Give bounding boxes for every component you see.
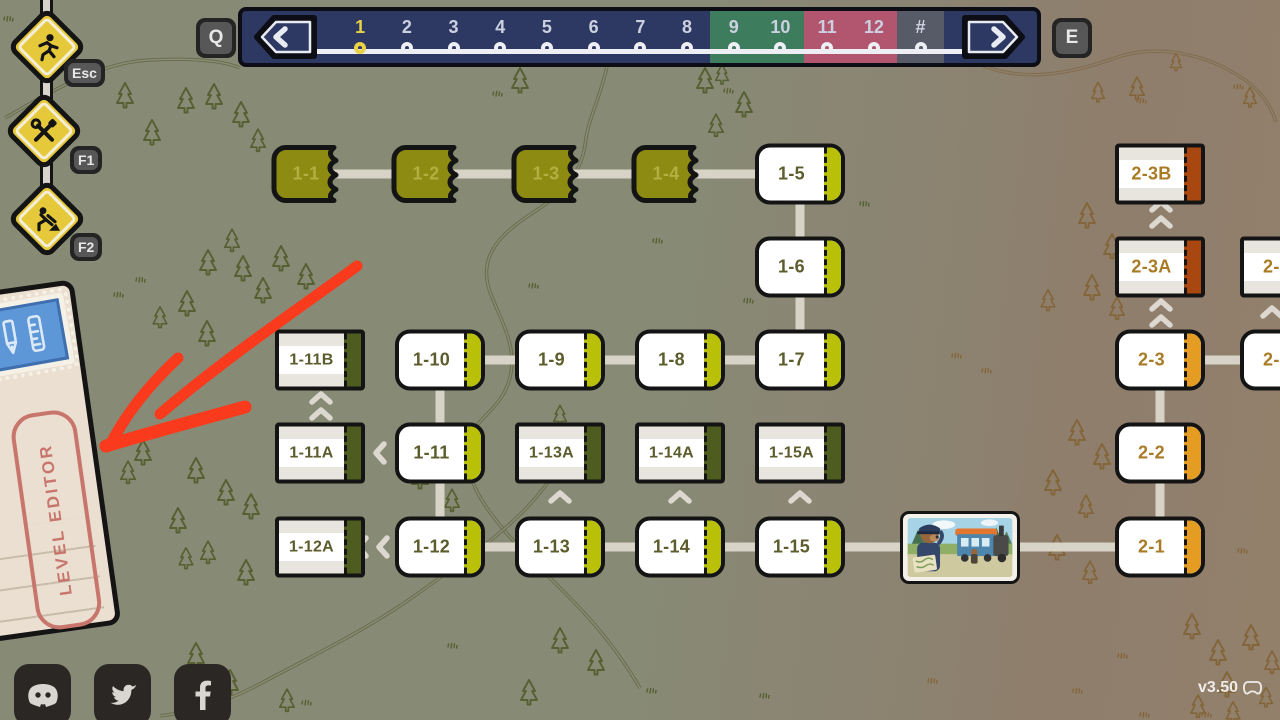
level-ticket-1-11A[interactable]: 1-11A	[275, 423, 365, 484]
level-ticket-1-5[interactable]: 1-5	[755, 144, 845, 205]
level-ticket-label: 2-1	[1119, 521, 1184, 574]
level-ticket-1-13A[interactable]: 1-13A	[515, 423, 605, 484]
ticket-stub	[704, 427, 721, 480]
chevron-left-icon	[376, 444, 384, 462]
level-ticket-1-3[interactable]: 1-3	[510, 144, 600, 205]
ticket-stub	[344, 334, 361, 387]
world-node-dot	[915, 42, 927, 54]
postage-stamp	[0, 292, 75, 379]
facebook-icon	[195, 680, 211, 710]
level-ticket-label: 2-2	[1119, 427, 1184, 480]
level-ticket-label: 1-5	[759, 148, 824, 201]
level-ticket-label: 1-3	[510, 144, 582, 205]
worker-icon	[30, 202, 64, 236]
world-tab-2[interactable]: 2	[383, 11, 430, 63]
level-ticket-1-8[interactable]: 1-8	[635, 330, 725, 391]
version-text: v3.50	[1198, 679, 1238, 697]
world-number: 5	[523, 17, 570, 38]
level-ticket-2-3[interactable]: 2-3	[1115, 330, 1205, 391]
world-node-dot	[681, 42, 693, 54]
level-ticket-1-12A[interactable]: 1-12A	[275, 517, 365, 578]
chevron-up-icon	[1152, 317, 1170, 325]
ticket-stub	[1184, 334, 1201, 387]
next-world-keycap: E	[1052, 18, 1092, 58]
construction-keycap: F2	[70, 233, 102, 261]
ticket-stub	[464, 427, 481, 480]
chevron-up-icon	[1152, 218, 1170, 226]
keycap-label: F1	[74, 150, 98, 170]
level-ticket-2-4[interactable]: 2-4	[1240, 237, 1280, 298]
gamepad-icon	[1243, 681, 1262, 695]
level-ticket-1-12[interactable]: 1-12	[395, 517, 485, 578]
world-tab-11[interactable]: 11	[804, 11, 851, 63]
level-ticket-2-4[interactable]: 2-4	[1240, 330, 1280, 391]
ticket-stub	[1184, 148, 1201, 201]
keycap-label: Esc	[68, 63, 101, 83]
world-node-dot	[401, 42, 413, 54]
world-number: 1	[337, 17, 384, 38]
level-ticket-2-3A[interactable]: 2-3A	[1115, 237, 1205, 298]
level-ticket-1-2[interactable]: 1-2	[390, 144, 480, 205]
ticket-stub	[584, 427, 601, 480]
level-ticket-1-15[interactable]: 1-15	[755, 517, 845, 578]
world-number: 7	[617, 17, 664, 38]
comic-thumbnail[interactable]	[900, 511, 1020, 584]
level-ticket-label: 2-3A	[1119, 241, 1184, 294]
ticket-stub	[344, 521, 361, 574]
ticket-stub	[1184, 241, 1201, 294]
discord-icon	[27, 683, 59, 707]
level-ticket-1-15A[interactable]: 1-15A	[755, 423, 845, 484]
level-editor-label: LEVEL EDITOR	[36, 443, 77, 597]
level-ticket-1-11[interactable]: 1-11	[395, 423, 485, 484]
world-node-dot	[588, 42, 600, 54]
chevron-up-icon	[1263, 308, 1280, 316]
world-number: 9	[710, 17, 757, 38]
exit-keycap: Esc	[64, 59, 105, 87]
world-node-dot	[728, 42, 740, 54]
runner-icon	[30, 30, 64, 64]
level-ticket-label: 1-15	[759, 521, 824, 574]
chevron-up-icon	[791, 493, 809, 501]
facebook-button[interactable]	[174, 664, 231, 720]
keycap-label: E	[1056, 22, 1088, 54]
level-ticket-1-1[interactable]: 1-1	[270, 144, 360, 205]
world-tab-4[interactable]: 4	[477, 11, 524, 63]
chevron-up-icon	[312, 394, 330, 402]
world-node-dot	[868, 42, 880, 54]
level-ticket-label: 2-3	[1119, 334, 1184, 387]
level-ticket-label: 2-4	[1244, 334, 1280, 387]
ticket-stub	[584, 521, 601, 574]
world-selector-bar: 123456789101112#	[238, 7, 1041, 67]
world-number: 12	[850, 17, 897, 38]
ticket-stub	[344, 427, 361, 480]
prev-world-keycap: Q	[196, 18, 236, 58]
world-number: 4	[477, 17, 524, 38]
world-number: 6	[570, 17, 617, 38]
world-node-dot	[634, 42, 646, 54]
ticket-stub	[824, 427, 841, 480]
level-ticket-label: 1-13A	[519, 427, 584, 480]
ticket-stub	[464, 334, 481, 387]
level-ticket-label: 1-15A	[759, 427, 824, 480]
chevron-up-icon	[1152, 301, 1170, 309]
version-label: v3.50	[1198, 679, 1262, 697]
ticket-stub	[464, 521, 481, 574]
level-ticket-label: 1-8	[639, 334, 704, 387]
tools-icon	[27, 114, 61, 148]
level-ticket-label: 1-10	[399, 334, 464, 387]
world-number: 11	[804, 17, 851, 38]
level-ticket-label: 2-4	[1244, 241, 1280, 294]
prev-world-button[interactable]	[252, 14, 318, 60]
ticket-stub	[1184, 427, 1201, 480]
world-node-dot	[821, 42, 833, 54]
world-number: 8	[664, 17, 711, 38]
level-ticket-1-4[interactable]: 1-4	[630, 144, 720, 205]
ticket-stub	[584, 334, 601, 387]
chevron-up-icon	[312, 410, 330, 418]
pencil-icon	[0, 317, 23, 360]
ticket-stub	[1184, 521, 1201, 574]
world-tab-5[interactable]: 5	[523, 11, 570, 63]
chevron-up-icon	[671, 493, 689, 501]
discord-button[interactable]	[14, 664, 71, 720]
world-node-dot	[541, 42, 553, 54]
keycap-label: F2	[74, 237, 98, 257]
ticket-stub	[824, 241, 841, 294]
level-ticket-label: 1-14	[639, 521, 704, 574]
chevron-left-icon	[379, 538, 387, 556]
level-ticket-label: 1-9	[519, 334, 584, 387]
world-tab-9[interactable]: 9	[710, 11, 757, 63]
level-ticket-label: 2-3B	[1119, 148, 1184, 201]
level-ticket-1-10[interactable]: 1-10	[395, 330, 485, 391]
world-tab-3[interactable]: 3	[430, 11, 477, 63]
twitter-icon	[108, 682, 138, 708]
level-ticket-label: 1-12	[399, 521, 464, 574]
world-tab-8[interactable]: 8	[664, 11, 711, 63]
world-number: #	[897, 17, 944, 38]
ticket-stub	[824, 521, 841, 574]
world-tab-12[interactable]: 12	[850, 11, 897, 63]
ticket-stub	[704, 334, 721, 387]
ruler-icon	[24, 312, 49, 355]
level-ticket-1-13[interactable]: 1-13	[515, 517, 605, 578]
ticket-stub	[824, 334, 841, 387]
level-ticket-label: 1-11	[399, 427, 464, 480]
world-tab-7[interactable]: 7	[617, 11, 664, 63]
level-ticket-label: 1-11B	[279, 334, 344, 387]
comic-illustration	[907, 518, 1013, 577]
level-ticket-1-7[interactable]: 1-7	[755, 330, 845, 391]
world-number: 2	[383, 17, 430, 38]
level-ticket-label: 1-1	[270, 144, 342, 205]
level-ticket-1-14[interactable]: 1-14	[635, 517, 725, 578]
world-tab-6[interactable]: 6	[570, 11, 617, 63]
world-tab-#[interactable]: #	[897, 11, 944, 63]
world-node-dot	[774, 42, 786, 54]
level-ticket-2-2[interactable]: 2-2	[1115, 423, 1205, 484]
level-ticket-label: 1-7	[759, 334, 824, 387]
world-number: 10	[757, 17, 804, 38]
level-ticket-1-11B[interactable]: 1-11B	[275, 330, 365, 391]
next-world-button[interactable]	[961, 14, 1027, 60]
level-ticket-label: 1-6	[759, 241, 824, 294]
level-ticket-label: 1-14A	[639, 427, 704, 480]
settings-keycap: F1	[70, 146, 102, 174]
world-tab-1[interactable]: 1	[337, 11, 384, 63]
level-ticket-2-3B[interactable]: 2-3B	[1115, 144, 1205, 205]
world-tab-10[interactable]: 10	[757, 11, 804, 63]
level-ticket-1-9[interactable]: 1-9	[515, 330, 605, 391]
world-node-dot	[354, 42, 366, 54]
ticket-stub	[704, 521, 721, 574]
world-number: 3	[430, 17, 477, 38]
level-ticket-label: 1-11A	[279, 427, 344, 480]
twitter-button[interactable]	[94, 664, 151, 720]
chevron-up-icon	[551, 493, 569, 501]
level-ticket-label: 1-2	[390, 144, 462, 205]
level-select-screen: 123456789101112# Q E	[0, 0, 1280, 720]
world-node-dot	[448, 42, 460, 54]
world-node-dot	[494, 42, 506, 54]
level-ticket-label: 1-4	[630, 144, 702, 205]
level-ticket-1-14A[interactable]: 1-14A	[635, 423, 725, 484]
level-ticket-label: 1-13	[519, 521, 584, 574]
level-ticket-2-1[interactable]: 2-1	[1115, 517, 1205, 578]
level-ticket-1-6[interactable]: 1-6	[755, 237, 845, 298]
level-ticket-label: 1-12A	[279, 521, 344, 574]
ticket-stub	[824, 148, 841, 201]
keycap-label: Q	[200, 22, 232, 54]
